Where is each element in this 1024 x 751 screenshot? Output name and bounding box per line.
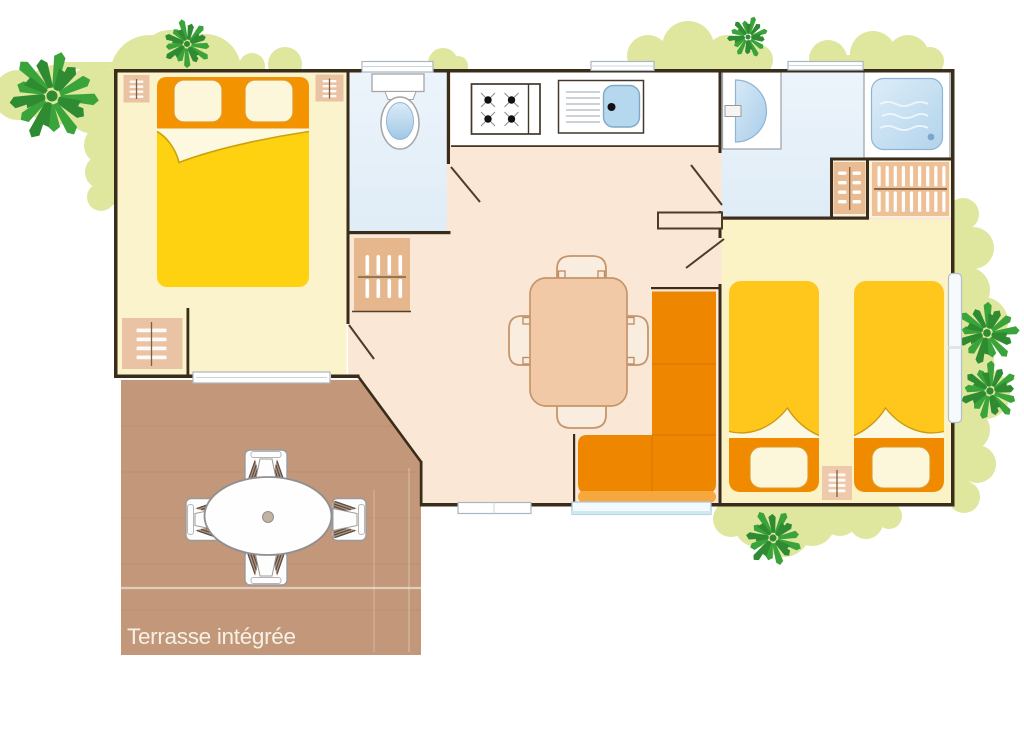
svg-text:Terrasse intégrée: Terrasse intégrée <box>127 624 296 649</box>
